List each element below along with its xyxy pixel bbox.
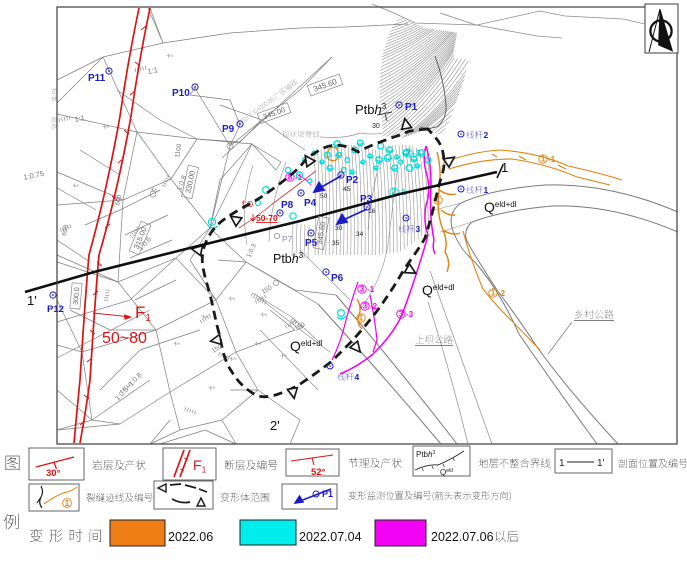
svg-text:1': 1' — [597, 458, 605, 469]
svg-text:30: 30 — [372, 123, 380, 130]
svg-text:P1: P1 — [405, 102, 418, 113]
svg-text:1: 1 — [501, 160, 508, 175]
svg-text:16: 16 — [368, 208, 376, 215]
svg-text:P11: P11 — [88, 73, 106, 84]
svg-text:-2: -2 — [498, 289, 506, 298]
svg-text:1: 1 — [559, 458, 565, 469]
svg-text:52°: 52° — [311, 467, 326, 478]
svg-text:50: 50 — [320, 193, 328, 200]
svg-text:P10: P10 — [172, 88, 190, 99]
svg-text:3: 3 — [399, 310, 404, 319]
svg-text:34: 34 — [356, 231, 364, 238]
svg-text:30°: 30° — [46, 468, 61, 479]
svg-text:P1: P1 — [322, 489, 333, 499]
svg-text:2022.06: 2022.06 — [168, 530, 213, 544]
svg-text:1:1: 1:1 — [74, 113, 86, 124]
svg-text:P6: P6 — [331, 273, 344, 284]
svg-text:P4: P4 — [304, 198, 317, 209]
svg-text:50-70: 50-70 — [256, 213, 278, 223]
svg-text:35: 35 — [332, 240, 340, 247]
svg-text:P2: P2 — [346, 175, 359, 186]
svg-text:2: 2 — [484, 130, 489, 140]
svg-text:-3: -3 — [413, 149, 421, 158]
svg-text:1:1: 1:1 — [147, 65, 159, 76]
svg-text:P12: P12 — [47, 304, 64, 315]
svg-text:1: 1 — [491, 289, 496, 298]
svg-text:P9: P9 — [222, 124, 235, 135]
svg-text:3: 3 — [360, 285, 365, 294]
svg-text:2: 2 — [406, 149, 411, 158]
svg-text:-3: -3 — [406, 310, 414, 319]
svg-text:50~80: 50~80 — [102, 330, 147, 347]
svg-text:3: 3 — [363, 302, 368, 311]
svg-text:30: 30 — [335, 225, 343, 232]
svg-text:P3: P3 — [360, 194, 373, 205]
svg-text:4: 4 — [355, 372, 360, 382]
svg-text:1: 1 — [541, 155, 546, 164]
svg-text:2': 2' — [270, 418, 280, 433]
svg-text:P8: P8 — [281, 200, 294, 211]
svg-text:-1: -1 — [548, 155, 556, 164]
svg-text:P7: P7 — [282, 234, 293, 244]
svg-text:1: 1 — [65, 499, 70, 508]
svg-text:2022.07.06: 2022.07.06 — [431, 530, 494, 544]
svg-text:3: 3 — [416, 224, 421, 234]
svg-text:1: 1 — [484, 185, 489, 195]
svg-text:1: 1 — [359, 314, 364, 323]
svg-text:45: 45 — [343, 186, 351, 193]
svg-text:-1: -1 — [367, 285, 375, 294]
svg-text:2022.07.04: 2022.07.04 — [299, 530, 362, 544]
svg-text:1': 1' — [27, 293, 37, 308]
